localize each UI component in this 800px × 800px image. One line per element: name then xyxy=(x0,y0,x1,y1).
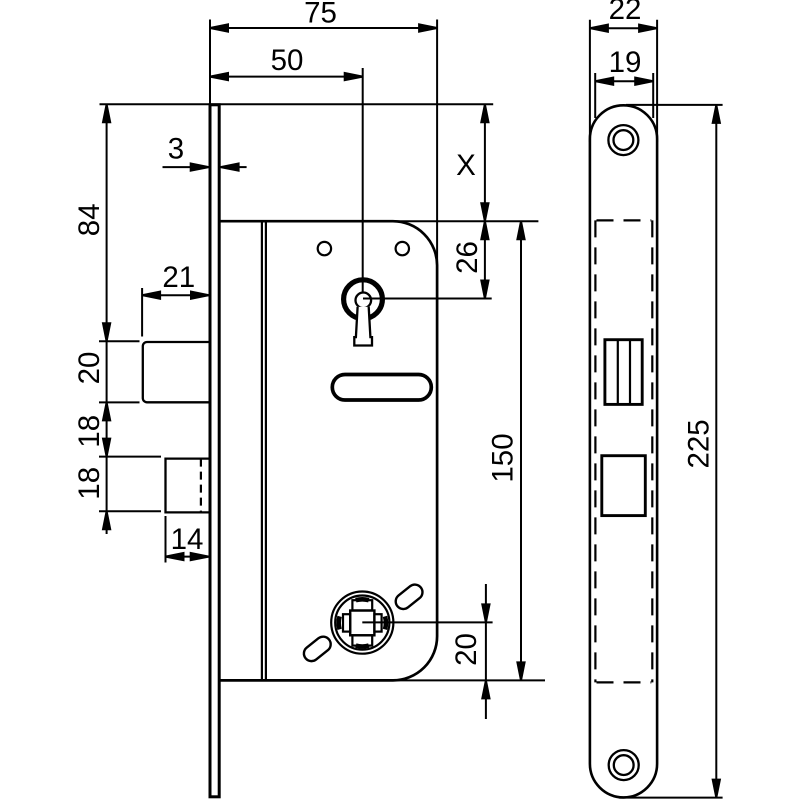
svg-text:21: 21 xyxy=(162,261,195,294)
svg-text:50: 50 xyxy=(271,44,304,77)
svg-text:18: 18 xyxy=(73,415,106,448)
svg-text:150: 150 xyxy=(487,433,520,482)
svg-text:3: 3 xyxy=(168,133,184,166)
svg-text:26: 26 xyxy=(451,241,484,274)
svg-text:20: 20 xyxy=(73,352,106,385)
svg-text:225: 225 xyxy=(682,419,715,468)
svg-text:18: 18 xyxy=(73,467,106,500)
svg-text:19: 19 xyxy=(609,46,642,79)
svg-text:84: 84 xyxy=(73,203,106,236)
svg-text:75: 75 xyxy=(304,0,337,30)
svg-text:X: X xyxy=(456,149,476,182)
svg-text:20: 20 xyxy=(450,633,483,666)
svg-text:14: 14 xyxy=(171,523,204,556)
svg-text:22: 22 xyxy=(609,0,642,26)
